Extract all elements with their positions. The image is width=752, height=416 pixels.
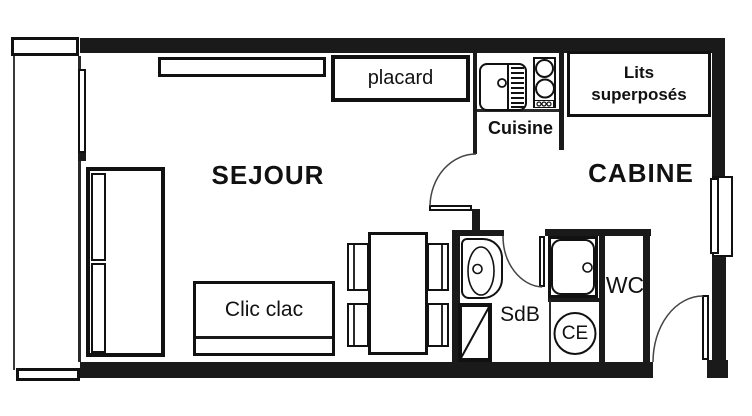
cooktop-knobs: [537, 102, 551, 106]
shower-drain: [583, 263, 592, 272]
room-label-sdb: SdB: [486, 303, 554, 327]
kitchen-door-arc: [430, 154, 476, 206]
burner-bottom: [536, 80, 554, 98]
burner-top: [536, 60, 553, 77]
sink-drainer-hatch: [511, 68, 524, 107]
entrance-door-arc: [653, 296, 703, 362]
washbasin-drain: [473, 265, 482, 274]
shower-tray-diagonal: [461, 307, 489, 358]
water-heater-label: CE: [557, 322, 593, 345]
floor-plan: placard Clic clac Lits superposés: [0, 0, 752, 416]
room-label-wc: WC: [600, 272, 650, 298]
room-label-sejour: SEJOUR: [180, 160, 356, 190]
bathroom-door-arc: [503, 236, 542, 287]
sink-faucet-hole: [498, 79, 506, 87]
room-label-cuisine: Cuisine: [468, 117, 573, 139]
room-label-cabine: CABINE: [558, 158, 724, 188]
plan-overlay: [0, 0, 752, 416]
